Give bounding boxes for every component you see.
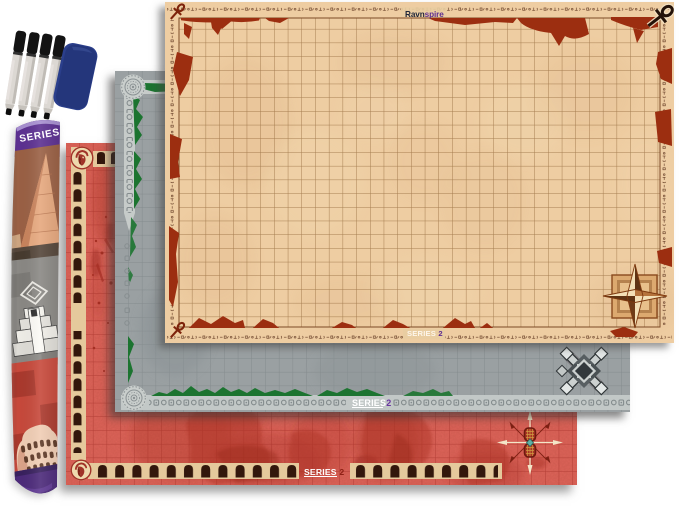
svg-text:SERIES 2: SERIES 2 bbox=[407, 329, 443, 338]
svg-text:SERIES2: SERIES2 bbox=[352, 398, 391, 408]
svg-text:Ravnspire: Ravnspire bbox=[405, 10, 444, 19]
svg-text:SERIES 2: SERIES 2 bbox=[304, 467, 344, 477]
